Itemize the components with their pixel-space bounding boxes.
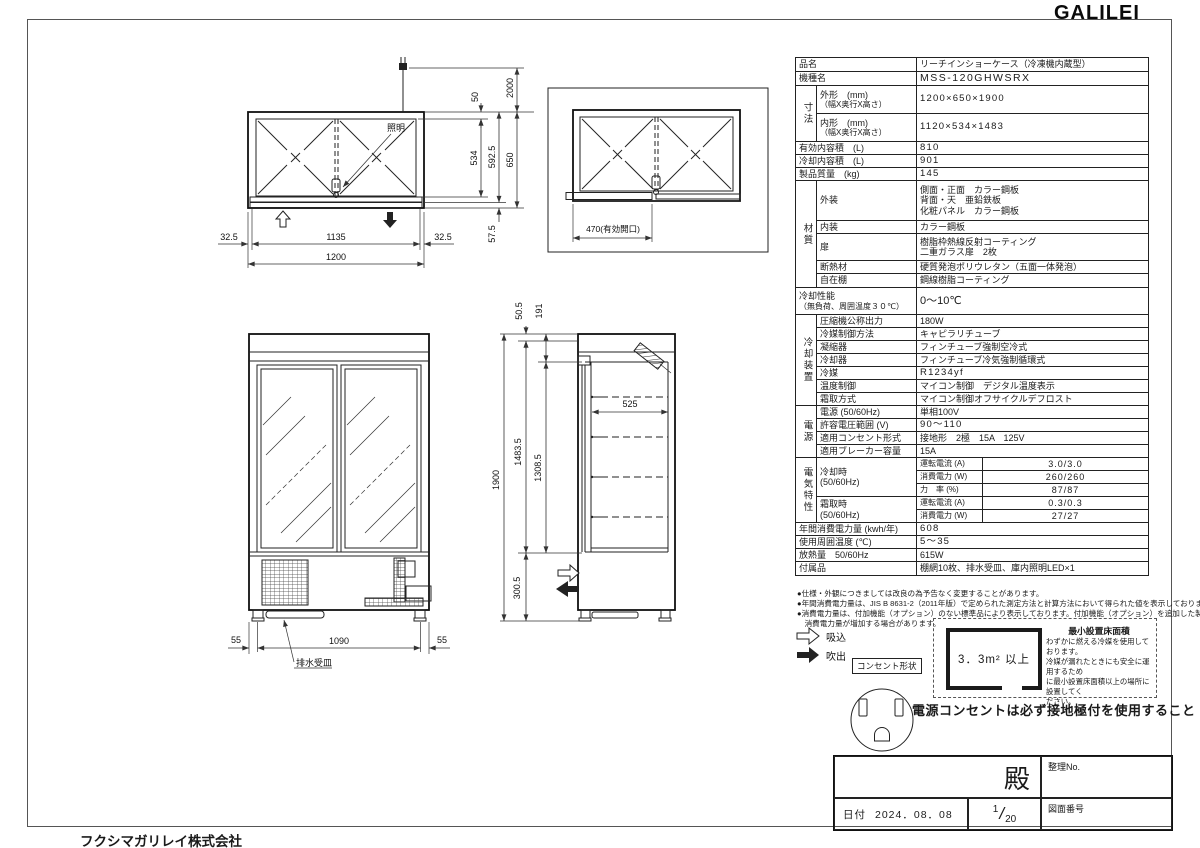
room-door-gap	[1002, 686, 1022, 690]
group-dimensions: 寸法	[796, 86, 817, 142]
spec-value: 硬質発泡ポリウレタン（五面一体発泡）	[917, 261, 1149, 274]
scale-numerator: 1	[993, 804, 999, 815]
drawing-sheet: GALILEI フクシマガリレイ株式会社	[0, 0, 1200, 848]
spec-value: 鋼線樹脂コーティング	[917, 274, 1149, 288]
dim-525: 525	[622, 399, 637, 409]
spec-value: 側面・正面 カラー鋼板背面・天 亜鉛鉄板化粧パネル カラー鋼板	[917, 181, 1149, 221]
spec-sublabel: 消費電力 (W)	[917, 510, 983, 523]
spec-label: 品名	[796, 58, 917, 72]
min-area-note: わずかに燃える冷媒を使用しております。 冷媒が漏れたときにも安全に運用するため …	[1046, 637, 1154, 707]
power-plug-diagram	[851, 689, 913, 751]
spec-value: マイコン制御オフサイクルデフロスト	[917, 393, 1149, 406]
spec-label: 外形 (mm)（幅X奥行X高さ）	[817, 86, 917, 114]
spec-value: 87/87	[983, 484, 1149, 497]
dim-592-5: 592.5	[487, 146, 497, 169]
spec-table: 品名リーチインショーケース（冷凍機内蔵型） 機種名MSS-120GHWSRX 寸…	[795, 57, 1149, 576]
spec-value: 1200×650×1900	[917, 86, 1149, 114]
spec-label: 冷却内容積 (L)	[796, 155, 917, 168]
front-view: 1090 55 55 排水受皿	[228, 334, 450, 668]
drawing-number-cell: 図面番号	[1041, 798, 1172, 830]
dim-1308-5: 1308.5	[533, 454, 543, 482]
plan-view-door-open: 470(有効開口)	[548, 88, 768, 252]
spec-value: 901	[917, 155, 1149, 168]
spec-value: リーチインショーケース（冷凍機内蔵型）	[917, 58, 1149, 72]
drain-pan	[266, 611, 324, 618]
dim-50-5: 50.5	[514, 302, 524, 320]
spec-sublabel: 消費電力 (W)	[917, 471, 983, 484]
spec-label: 内形 (mm)（幅X奥行X高さ）	[817, 114, 917, 142]
date-cell: 日付 2024．08．08	[834, 798, 968, 830]
airflow-out-arrow	[556, 581, 579, 597]
dim-1900: 1900	[491, 470, 501, 490]
spec-value: 260/260	[983, 471, 1149, 484]
spec-value: マイコン制御 デジタル温度表示	[917, 380, 1149, 393]
spec-value: カラー鋼板	[917, 221, 1149, 234]
spec-label: 使用周囲温度 (℃)	[796, 536, 917, 549]
spec-label: 内装	[817, 221, 917, 234]
cabinet-outline-side	[578, 334, 675, 610]
spec-label: 冷却器	[817, 354, 917, 367]
spec-label: 外装	[817, 181, 917, 221]
scale-cell: 1 / 20	[968, 798, 1041, 830]
spec-value: キャピラリチューブ	[917, 328, 1149, 341]
spec-label: 圧縮機公称出力	[817, 315, 917, 328]
min-area-title: 最小設置床面積	[1046, 624, 1152, 637]
spec-value: 180W	[917, 315, 1149, 328]
group-electrical: 電気特性	[796, 458, 817, 523]
spec-label: 適用ブレーカー容量	[817, 445, 917, 458]
dim-32-5-right: 32.5	[434, 232, 452, 242]
addressee-cell: 殿	[834, 756, 1041, 798]
suction-arrow-icon	[276, 211, 290, 227]
spec-sublabel: 運転電流 (A)	[917, 458, 983, 471]
spec-value: 棚網10枚、排水受皿、庫内照明LED×1	[917, 562, 1149, 576]
spec-value: 3.0/3.0	[983, 458, 1149, 471]
spec-value: フィンチューブ冷気強制循環式	[917, 354, 1149, 367]
led-lamp	[634, 343, 664, 369]
vent-grille	[262, 560, 308, 605]
lighting-label: 照明	[387, 123, 405, 133]
suction-legend-icon	[797, 628, 819, 644]
spec-label: 温度制御	[817, 380, 917, 393]
spec-label: 機種名	[796, 72, 917, 86]
spec-label: 凝縮器	[817, 341, 917, 354]
model-number: MSS-120GHWSRX	[917, 72, 1149, 86]
spec-value: 145	[917, 168, 1149, 181]
spec-label: 適用コンセント形式	[817, 432, 917, 445]
spec-label: 冷却時(50/60Hz)	[817, 458, 917, 497]
plan-view: 照明 1135 32.5 32.5 1200 50 534	[218, 57, 534, 268]
dim-50: 50	[470, 92, 480, 102]
dim-55-right: 55	[437, 635, 447, 645]
room-pictogram: 3．3m² 以上	[946, 628, 1042, 690]
min-install-area-box: 3．3m² 以上 最小設置床面積 わずかに燃える冷媒を使用しております。 冷媒が…	[933, 618, 1157, 698]
spec-label: 霜取方式	[817, 393, 917, 406]
spec-label: 付属品	[796, 562, 917, 576]
spec-value: 1120×534×1483	[917, 114, 1149, 142]
left-glass-door	[257, 365, 337, 552]
outlet-shape-label: コンセント形状	[852, 658, 922, 674]
right-glass-door	[341, 365, 421, 552]
spec-value: 810	[917, 142, 1149, 155]
drain-pan-label: 排水受皿	[296, 657, 332, 668]
spec-label: 扉	[817, 234, 917, 261]
dim-55-left: 55	[231, 635, 241, 645]
dim-1483-5: 1483.5	[513, 438, 523, 466]
dim-2000: 2000	[505, 78, 515, 98]
spec-value: 27/27	[983, 510, 1149, 523]
spec-label: 自在棚	[817, 274, 917, 288]
footnote-line: ●仕様・外観につきましては改良の為予告なく変更することがあります。	[797, 589, 1197, 599]
dim-1090: 1090	[329, 636, 349, 646]
group-cooling-unit: 冷却装置	[796, 315, 817, 406]
spec-label: 製品質量 (kg)	[796, 168, 917, 181]
spec-label: 放熱量 50/60Hz	[796, 549, 917, 562]
group-material: 材質	[796, 181, 817, 288]
control-number-cell: 整理No.	[1041, 756, 1172, 798]
spec-sublabel: 運転電流 (A)	[917, 497, 983, 510]
blowout-arrow-icon	[383, 212, 397, 228]
spec-value: 単相100V	[917, 406, 1149, 419]
spec-value: 0～10℃	[917, 288, 1149, 315]
airflow-legend: 吸込 吹出	[797, 628, 846, 663]
spec-label: 許容電圧範囲 (V)	[817, 419, 917, 432]
suction-legend-label: 吸込	[826, 632, 846, 644]
scale-slash: /	[999, 804, 1004, 824]
spec-label: 電源 (50/60Hz)	[817, 406, 917, 419]
dim-1200: 1200	[326, 252, 346, 262]
blowout-legend-label: 吹出	[826, 650, 846, 663]
dim-effective-opening: 470(有効開口)	[586, 224, 640, 234]
spec-label: 断熱材	[817, 261, 917, 274]
spec-label: 冷媒制御方法	[817, 328, 917, 341]
spec-label: 有効内容積 (L)	[796, 142, 917, 155]
spec-value: 5～35	[917, 536, 1149, 549]
spec-value: 樹脂枠熱線反射コーティング二重ガラス扉 2枚	[917, 234, 1149, 261]
spec-label: 冷却性能（無負荷、周囲温度３０℃）	[796, 288, 917, 315]
spec-sublabel: 力 率 (%)	[917, 484, 983, 497]
spec-value: 608	[917, 523, 1149, 536]
min-area-value: 3．3m² 以上	[958, 651, 1030, 667]
dim-534: 534	[469, 150, 479, 165]
spec-value: フィンチューブ強制空冷式	[917, 341, 1149, 354]
shelves	[591, 396, 668, 518]
ground-pin-slot	[875, 728, 890, 741]
spec-value: 接地形 2極 15A 125V	[917, 432, 1149, 445]
blowout-legend-icon	[797, 647, 819, 663]
spec-label: 年間消費電力量 (kwh/年)	[796, 523, 917, 536]
dim-300-5: 300.5	[512, 577, 522, 600]
dim-1135: 1135	[326, 232, 345, 242]
footnote-line: ●年間消費電力量は、JIS B 8631-2（2011年版）で定められた測定方法…	[797, 599, 1197, 609]
spec-value: R1234yf	[917, 367, 1149, 380]
group-power: 電源	[796, 406, 817, 458]
spec-value: 0.3/0.3	[983, 497, 1149, 510]
spec-label: 冷媒	[817, 367, 917, 380]
spec-value: 615W	[917, 549, 1149, 562]
dim-57-5: 57.5	[487, 225, 497, 243]
spec-value: 15A	[917, 445, 1149, 458]
dim-650: 650	[505, 152, 515, 167]
power-plug-symbol	[399, 63, 407, 70]
side-section-view: 525 1900 50.5 1483.5 191 1308.5	[491, 302, 675, 621]
date-value: 2024．08．08	[875, 807, 953, 822]
spec-value: 90～110	[917, 419, 1149, 432]
date-label: 日付	[843, 807, 866, 822]
dim-191: 191	[534, 303, 544, 318]
door-lock	[332, 179, 340, 192]
scale-denominator: 20	[1005, 814, 1016, 825]
title-block: 殿 整理No. 日付 2024．08．08 1 / 20 図面番号	[833, 755, 1173, 831]
spec-label: 霜取時(50/60Hz)	[817, 497, 917, 523]
airflow-in-arrow	[558, 565, 579, 581]
dim-32-5-left: 32.5	[220, 232, 238, 242]
slid-door	[566, 193, 652, 200]
